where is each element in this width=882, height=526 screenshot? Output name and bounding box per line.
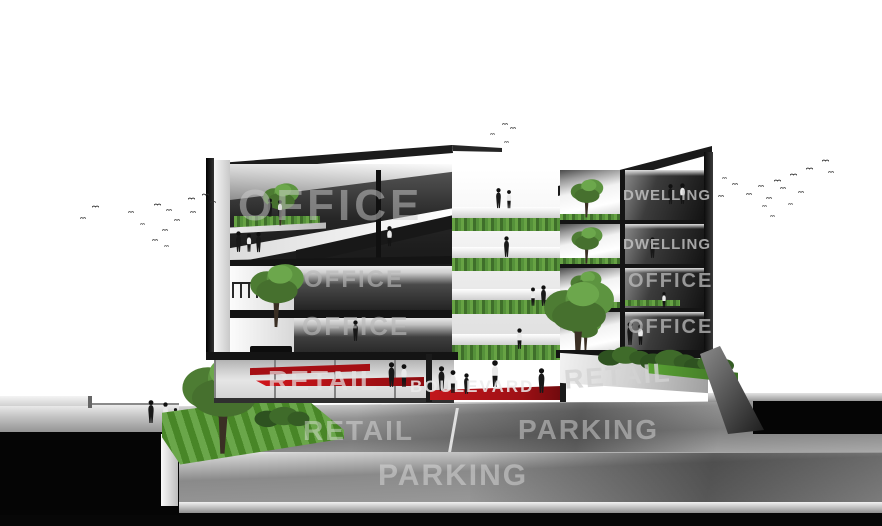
person-icon: [245, 233, 253, 253]
person-icon: [515, 328, 524, 350]
basement2-foot-slab: [178, 502, 882, 513]
person-icon: [386, 362, 397, 388]
pedestrian-figure: [146, 400, 156, 424]
retail-ground-left-label: RETAIL: [268, 367, 379, 395]
person-icon: [536, 368, 547, 394]
street-curb-edge: [88, 396, 92, 408]
person-icon: [399, 364, 409, 388]
terrace-planting: [452, 218, 564, 231]
office-right-label-upper: OFFICE: [628, 271, 713, 291]
person-icon: [660, 292, 668, 308]
bird-flock-center: [484, 120, 524, 152]
retail-basement-label: RETAIL: [303, 417, 414, 445]
street-curb-strip: [0, 396, 92, 406]
office-label-lower: OFFICE: [302, 313, 409, 339]
retaining-wall-wedge: [698, 344, 766, 436]
right-earth-cut: [753, 401, 882, 434]
architectural-section-diagram: OFFICE OFFICE OFFICE DWELLING DWELLING O…: [0, 0, 882, 526]
left-earth-cut: [0, 431, 179, 515]
dwelling-label-lower: DWELLING: [623, 237, 711, 252]
boulevard-label: BOULEVARD: [410, 378, 534, 395]
office-label-mid: OFFICE: [304, 268, 404, 292]
terrace-planting: [452, 258, 564, 271]
ceiling-sliver: [625, 170, 708, 176]
parking-basement1-label: PARKING: [518, 416, 659, 444]
dwelling-label-upper: DWELLING: [623, 188, 711, 203]
parking-basement2-label: PARKING: [378, 461, 528, 491]
bird-flock-right: [710, 156, 842, 222]
office-right-label-lower: OFFICE: [628, 317, 713, 337]
interior-green-floor: [625, 300, 680, 306]
person-icon: [234, 231, 243, 253]
retail-floor-line: [214, 398, 454, 403]
ground-slab-left: [206, 352, 458, 360]
balcony-tree-icon: [566, 226, 608, 264]
indoor-tree-icon: [246, 262, 308, 328]
person-icon: [494, 188, 503, 209]
balcony-tree-icon: [566, 178, 608, 218]
person-icon: [254, 232, 263, 253]
basement2-shadow-streak: [470, 453, 882, 504]
ceiling-sliver: [625, 224, 708, 229]
person-icon: [505, 190, 513, 209]
office-label-top: OFFICE: [238, 184, 423, 228]
bird-flock-left: [70, 188, 220, 254]
person-icon: [502, 236, 511, 258]
